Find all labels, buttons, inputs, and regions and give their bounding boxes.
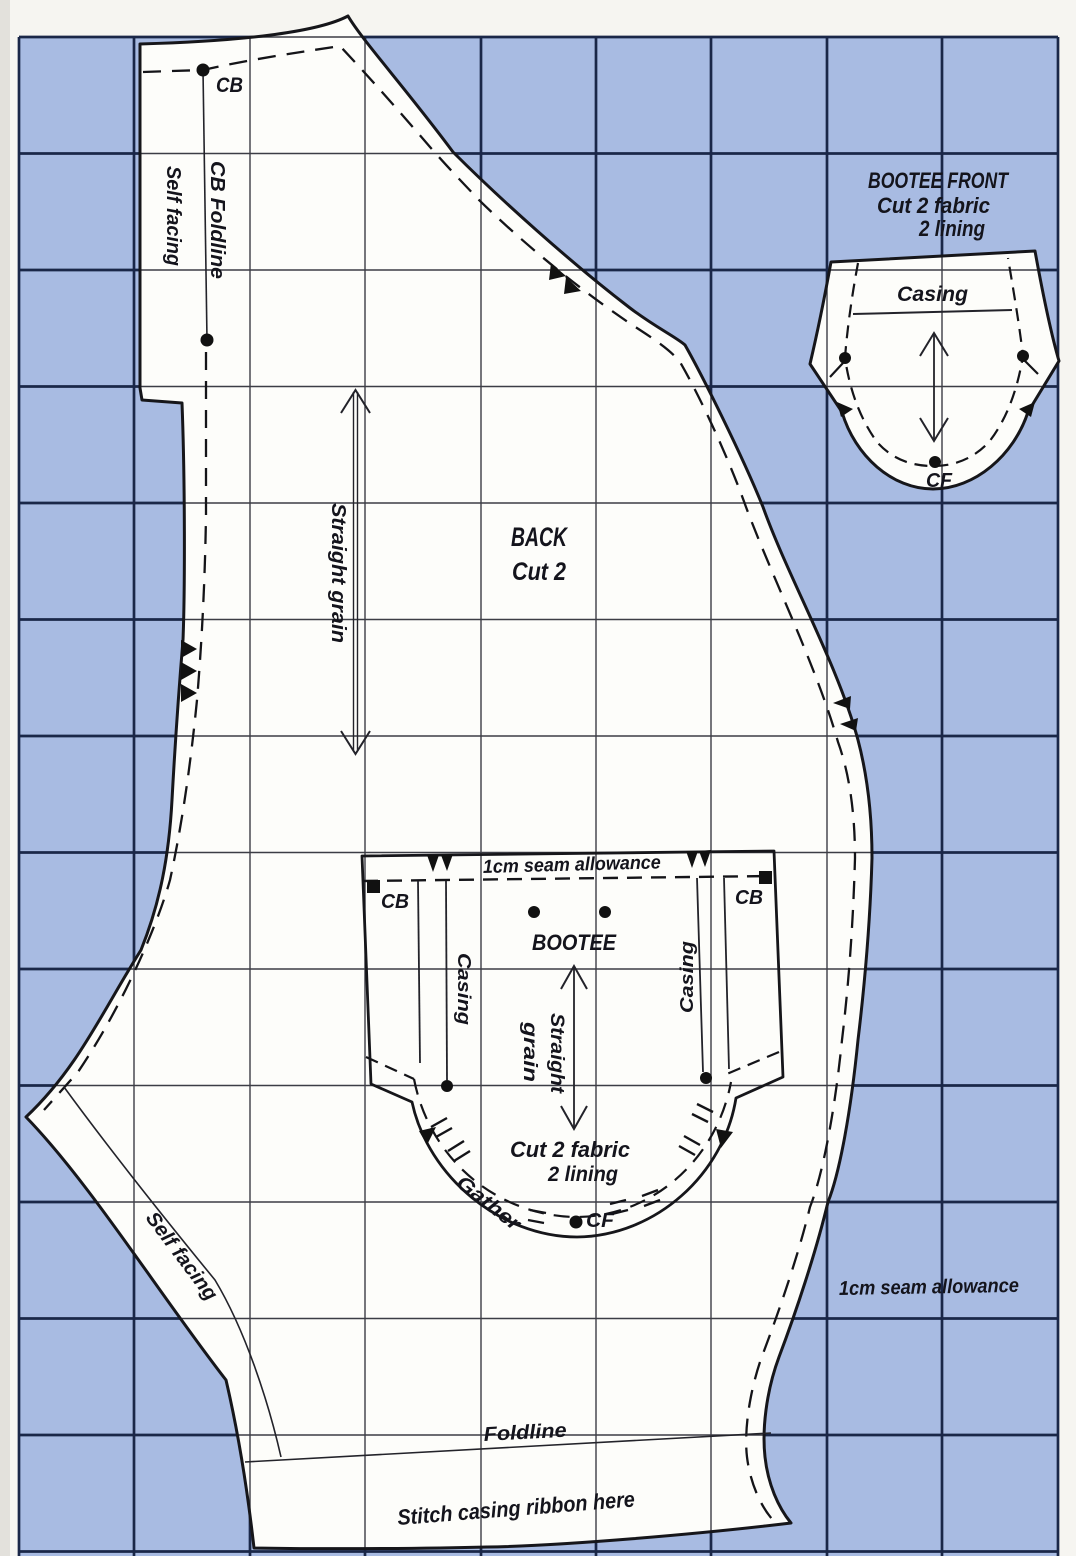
svg-text:Casing: Casing bbox=[897, 283, 968, 306]
svg-text:Cut 2 fabric: Cut 2 fabric bbox=[510, 1137, 630, 1162]
svg-text:BACK: BACK bbox=[511, 522, 569, 552]
svg-text:CB: CB bbox=[381, 891, 409, 913]
svg-text:Casing: Casing bbox=[454, 953, 474, 1025]
svg-text:2 lining: 2 lining bbox=[918, 216, 985, 241]
svg-text:Self facing: Self facing bbox=[162, 166, 184, 266]
svg-text:Foldline: Foldline bbox=[483, 1420, 567, 1446]
svg-text:CB Foldline: CB Foldline bbox=[206, 161, 228, 279]
svg-text:Straight: Straight bbox=[546, 1013, 567, 1094]
svg-text:Cut 2: Cut 2 bbox=[512, 558, 566, 586]
svg-text:Straight grain: Straight grain bbox=[327, 503, 349, 643]
svg-text:CF: CF bbox=[926, 470, 953, 492]
svg-text:CF: CF bbox=[586, 1210, 615, 1232]
svg-text:1cm seam allowance: 1cm seam allowance bbox=[839, 1275, 1019, 1300]
svg-text:BOOTEE FRONT: BOOTEE FRONT bbox=[868, 168, 1009, 193]
svg-text:Cut 2 fabric: Cut 2 fabric bbox=[877, 193, 990, 218]
svg-text:2 lining: 2 lining bbox=[547, 1163, 618, 1186]
svg-text:CB: CB bbox=[735, 887, 763, 909]
svg-text:grain: grain bbox=[519, 1021, 540, 1082]
svg-text:Casing: Casing bbox=[677, 941, 697, 1013]
svg-text:CB: CB bbox=[216, 74, 243, 97]
svg-text:BOOTEE: BOOTEE bbox=[532, 930, 617, 955]
